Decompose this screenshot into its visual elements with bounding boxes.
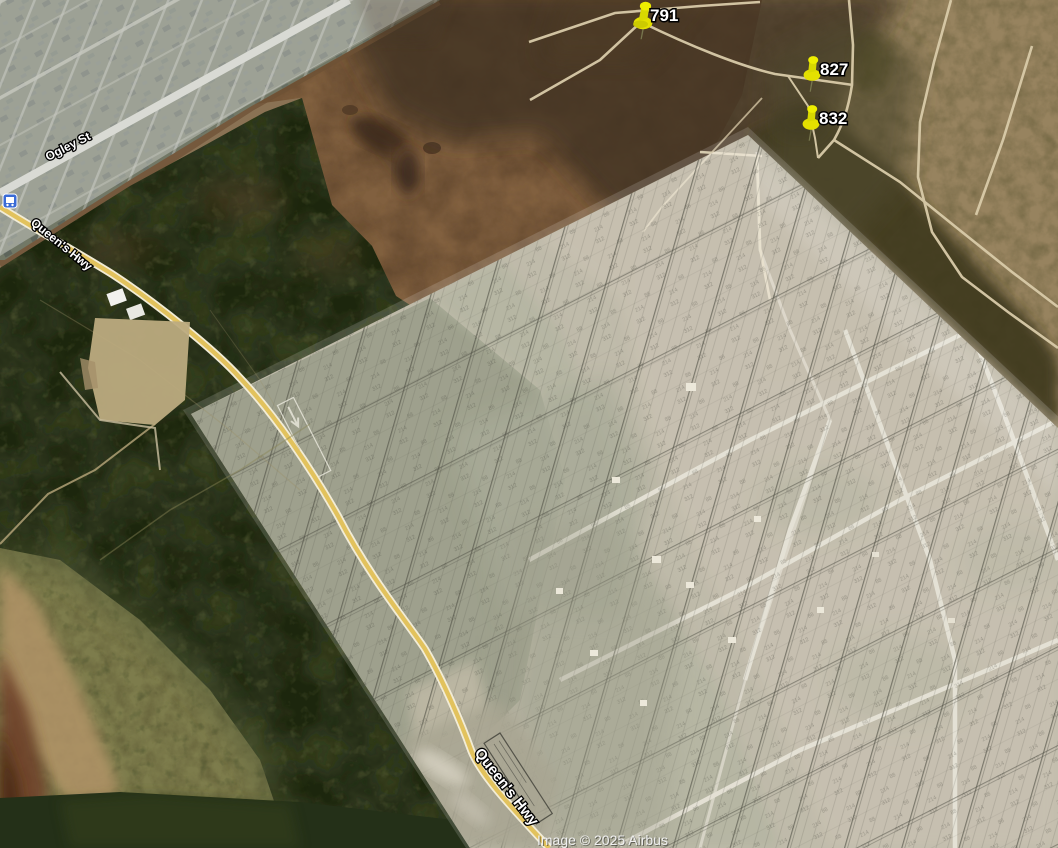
- svg-text:Image © 2025 Airbus: Image © 2025 Airbus: [537, 832, 668, 848]
- svg-text:827: 827: [820, 60, 848, 79]
- svg-text:832: 832: [819, 109, 847, 128]
- svg-text:791: 791: [650, 6, 678, 25]
